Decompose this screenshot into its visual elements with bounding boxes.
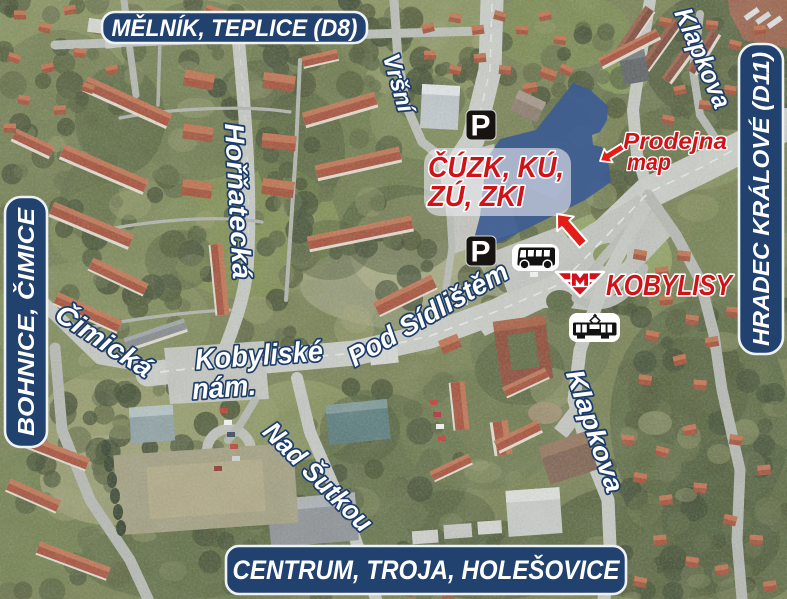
svg-text:ČÚZK, KÚ,: ČÚZK, KÚ, <box>428 150 564 184</box>
svg-text:HRADEC KRÁLOVÉ (D11): HRADEC KRÁLOVÉ (D11) <box>747 52 774 346</box>
svg-text:ZÚ, ZKI: ZÚ, ZKI <box>427 179 525 213</box>
svg-text:CENTRUM, TROJA, HOLEŠOVICE: CENTRUM, TROJA, HOLEŠOVICE <box>233 554 621 585</box>
svg-text:P: P <box>470 110 490 143</box>
svg-text:map: map <box>627 149 671 175</box>
svg-text:BOHNICE, ČIMICE: BOHNICE, ČIMICE <box>12 207 39 436</box>
svg-text:MĚLNÍK, TEPLICE (D8): MĚLNÍK, TEPLICE (D8) <box>112 14 358 42</box>
svg-text:P: P <box>470 236 490 269</box>
svg-text:KOBYLISY: KOBYLISY <box>606 270 734 302</box>
svg-text:nám.: nám. <box>191 370 257 406</box>
